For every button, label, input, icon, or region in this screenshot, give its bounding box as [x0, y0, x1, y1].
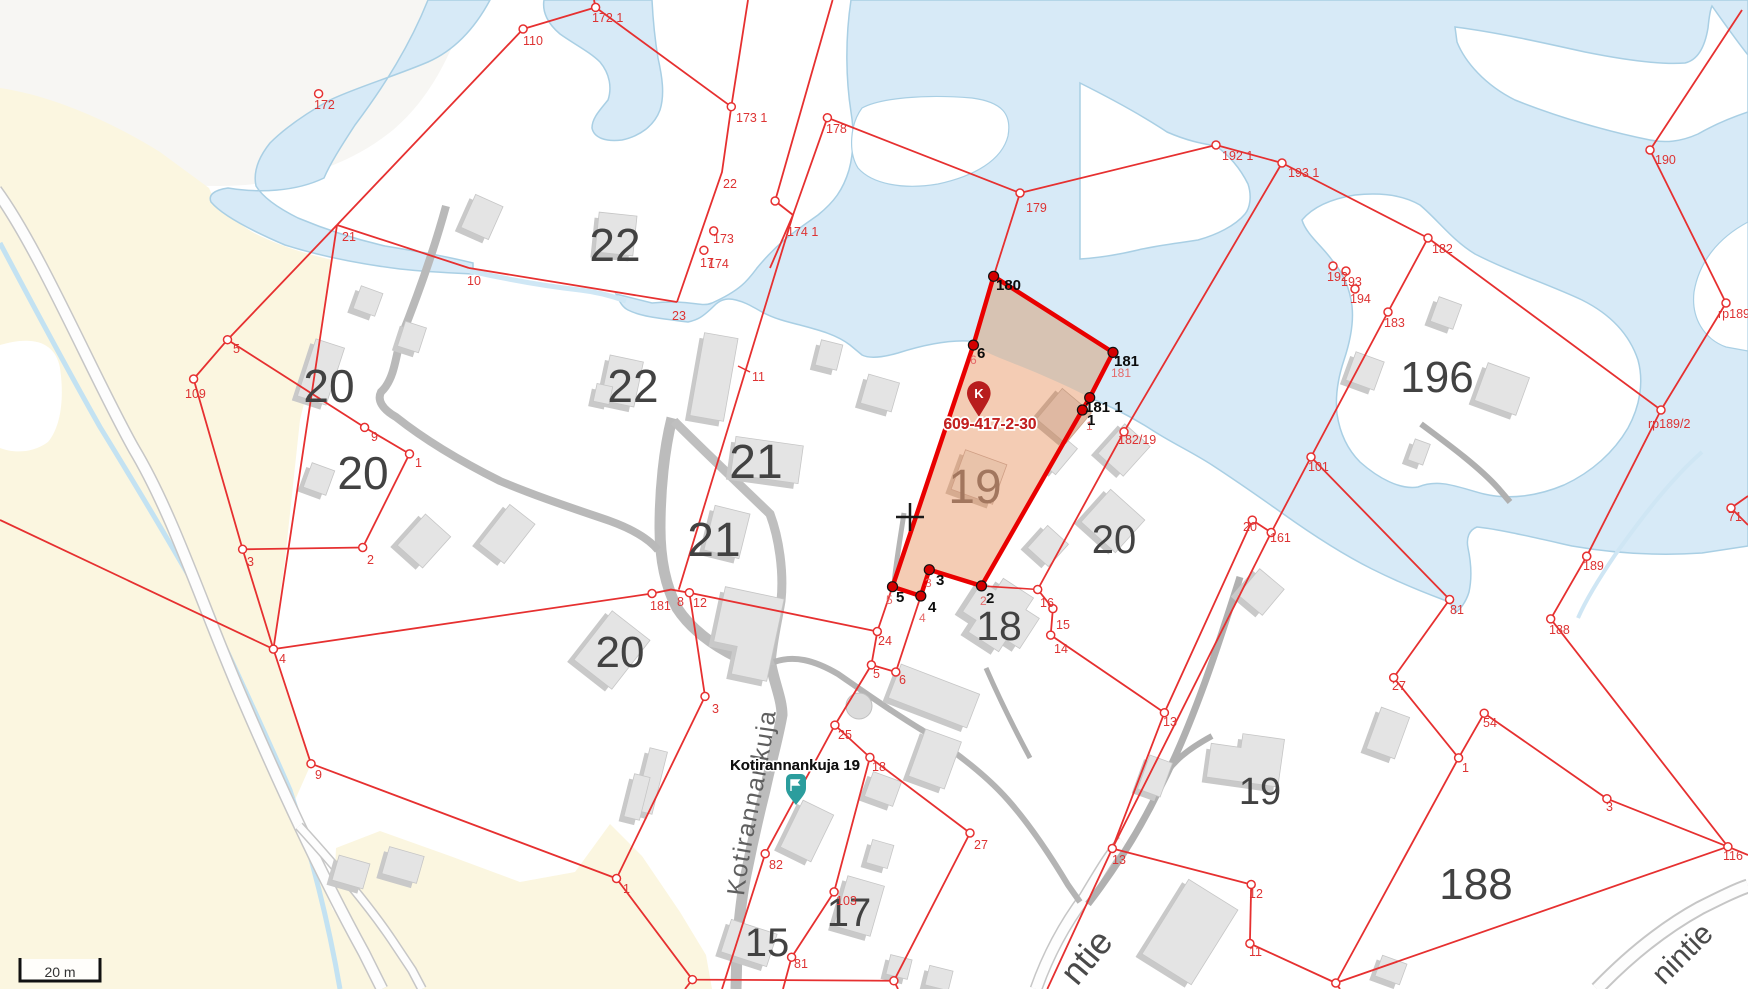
svg-text:81: 81: [1450, 603, 1464, 617]
svg-text:178: 178: [826, 122, 847, 136]
svg-text:4: 4: [928, 599, 937, 616]
svg-text:174: 174: [708, 257, 729, 271]
svg-text:9: 9: [315, 768, 322, 782]
svg-text:71: 71: [1728, 510, 1742, 524]
svg-text:5: 5: [873, 667, 880, 681]
svg-text:189: 189: [1583, 559, 1604, 573]
svg-text:22: 22: [723, 177, 737, 191]
svg-text:20: 20: [303, 360, 354, 412]
svg-text:13: 13: [1163, 715, 1177, 729]
svg-text:5: 5: [886, 593, 893, 607]
svg-text:rp189/2: rp189/2: [1648, 417, 1690, 431]
svg-text:3: 3: [936, 572, 944, 589]
svg-text:15: 15: [1056, 618, 1070, 632]
svg-text:rp189/: rp189/: [1718, 307, 1748, 321]
svg-text:20: 20: [596, 628, 645, 677]
svg-text:K: K: [974, 386, 984, 401]
svg-text:Kotirannankuja 19: Kotirannankuja 19: [730, 757, 860, 774]
svg-text:82: 82: [769, 858, 783, 872]
svg-text:20 m: 20 m: [44, 964, 75, 980]
svg-text:6: 6: [899, 673, 906, 687]
svg-text:22: 22: [607, 360, 658, 412]
svg-text:172 1: 172 1: [592, 11, 623, 25]
svg-text:18: 18: [872, 760, 886, 774]
svg-text:16: 16: [1040, 596, 1054, 610]
svg-text:27: 27: [1392, 679, 1406, 693]
svg-text:4: 4: [279, 652, 286, 666]
svg-text:20: 20: [1092, 518, 1137, 562]
svg-text:14: 14: [1054, 642, 1068, 656]
svg-text:109: 109: [185, 387, 206, 401]
svg-text:188: 188: [1549, 623, 1570, 637]
svg-text:116: 116: [1723, 849, 1743, 863]
svg-text:19: 19: [1239, 771, 1281, 813]
svg-text:2: 2: [367, 553, 374, 567]
svg-text:11: 11: [1249, 945, 1262, 959]
svg-text:180: 180: [996, 277, 1021, 294]
svg-text:20: 20: [1243, 520, 1257, 534]
svg-text:21: 21: [729, 436, 782, 489]
svg-text:6: 6: [970, 353, 977, 367]
svg-text:2: 2: [986, 590, 994, 607]
svg-text:5: 5: [233, 342, 240, 356]
svg-text:21: 21: [687, 514, 740, 567]
svg-text:3: 3: [247, 555, 254, 569]
svg-text:183: 183: [1384, 316, 1405, 330]
svg-text:193 1: 193 1: [1288, 166, 1319, 180]
svg-text:19: 19: [948, 461, 1001, 514]
svg-text:1: 1: [1087, 412, 1095, 429]
svg-text:161: 161: [1270, 531, 1291, 545]
svg-text:194: 194: [1350, 292, 1371, 306]
svg-text:1: 1: [415, 456, 422, 470]
svg-text:181: 181: [1114, 353, 1139, 370]
svg-text:12: 12: [693, 596, 707, 610]
svg-text:110: 110: [523, 34, 543, 48]
svg-text:182/19: 182/19: [1118, 433, 1156, 447]
svg-text:182: 182: [1432, 242, 1453, 256]
svg-text:8: 8: [677, 595, 684, 609]
svg-text:15: 15: [745, 921, 790, 965]
svg-text:173 1: 173 1: [736, 111, 767, 125]
svg-text:193: 193: [1341, 275, 1362, 289]
svg-text:190: 190: [1655, 153, 1676, 167]
svg-text:9: 9: [371, 430, 378, 444]
svg-text:3: 3: [925, 576, 932, 590]
svg-text:24: 24: [878, 634, 892, 648]
svg-text:3: 3: [1606, 800, 1613, 814]
svg-text:609-417-2-30: 609-417-2-30: [943, 416, 1036, 433]
svg-text:6: 6: [977, 345, 985, 362]
svg-text:173: 173: [713, 232, 734, 246]
svg-text:81: 81: [794, 957, 808, 971]
svg-text:1: 1: [623, 882, 630, 896]
svg-text:21: 21: [342, 230, 356, 244]
svg-text:196: 196: [1400, 353, 1473, 402]
svg-text:174 1: 174 1: [787, 225, 818, 239]
svg-text:1: 1: [1462, 761, 1469, 775]
svg-text:188: 188: [1439, 860, 1512, 909]
svg-text:10: 10: [467, 274, 481, 288]
svg-text:12: 12: [1249, 887, 1263, 901]
svg-text:54: 54: [1483, 716, 1497, 730]
svg-text:13: 13: [1112, 853, 1126, 867]
svg-text:11: 11: [752, 370, 765, 384]
svg-text:23: 23: [672, 309, 686, 323]
svg-text:3: 3: [712, 702, 719, 716]
svg-text:22: 22: [589, 219, 640, 271]
svg-text:5: 5: [896, 589, 904, 606]
svg-text:4: 4: [919, 611, 926, 625]
svg-text:101: 101: [1308, 460, 1329, 474]
svg-text:172: 172: [314, 98, 335, 112]
svg-text:179: 179: [1026, 201, 1047, 215]
svg-text:103: 103: [836, 894, 857, 908]
svg-text:20: 20: [337, 447, 388, 499]
svg-text:25: 25: [838, 728, 852, 742]
svg-text:192 1: 192 1: [1222, 149, 1253, 163]
svg-text:18: 18: [976, 603, 1022, 649]
svg-text:27: 27: [974, 838, 988, 852]
svg-text:181: 181: [650, 599, 671, 613]
